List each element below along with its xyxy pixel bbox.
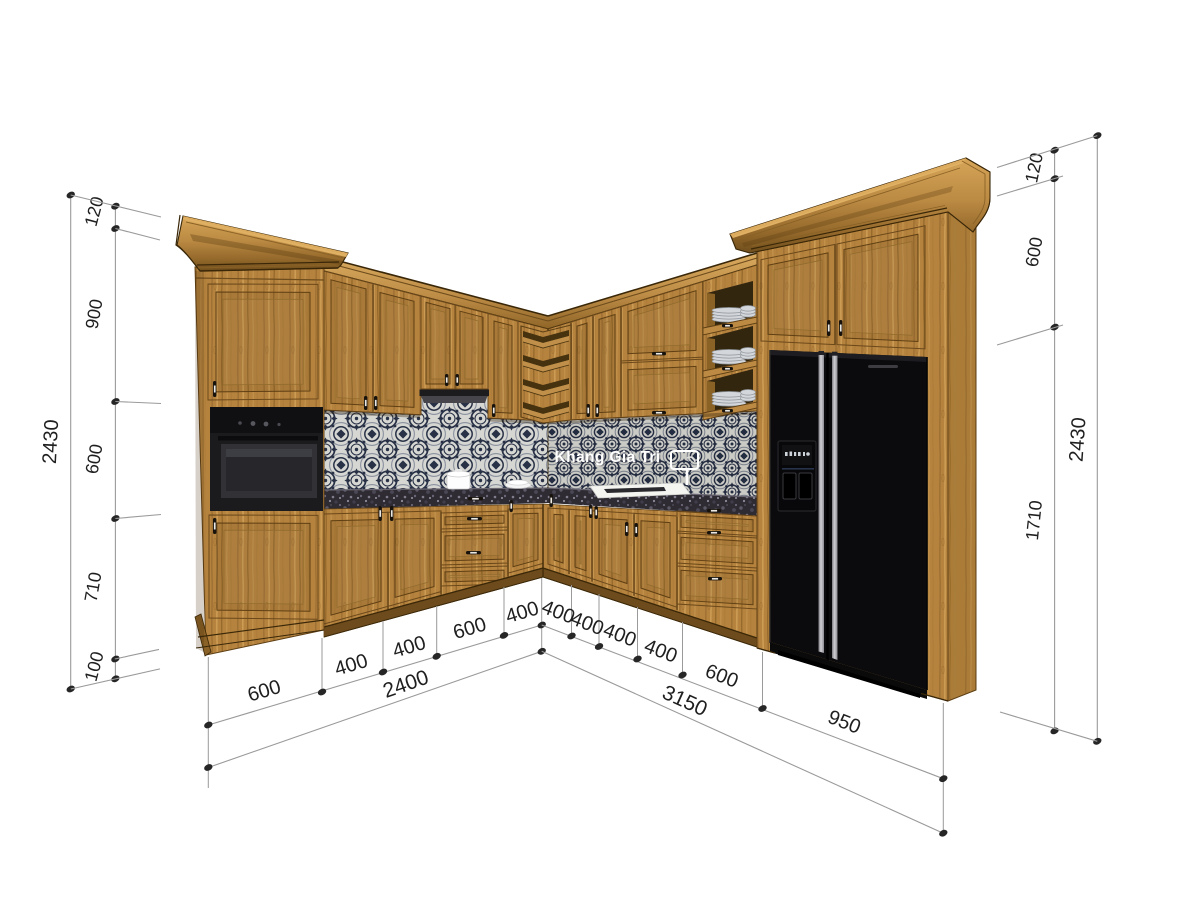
svg-text:1710: 1710 <box>1022 499 1046 541</box>
svg-text:2430: 2430 <box>39 419 63 465</box>
svg-text:Khang Gia Tri: Khang Gia Tri <box>555 449 661 466</box>
svg-text:2430: 2430 <box>1065 417 1090 463</box>
